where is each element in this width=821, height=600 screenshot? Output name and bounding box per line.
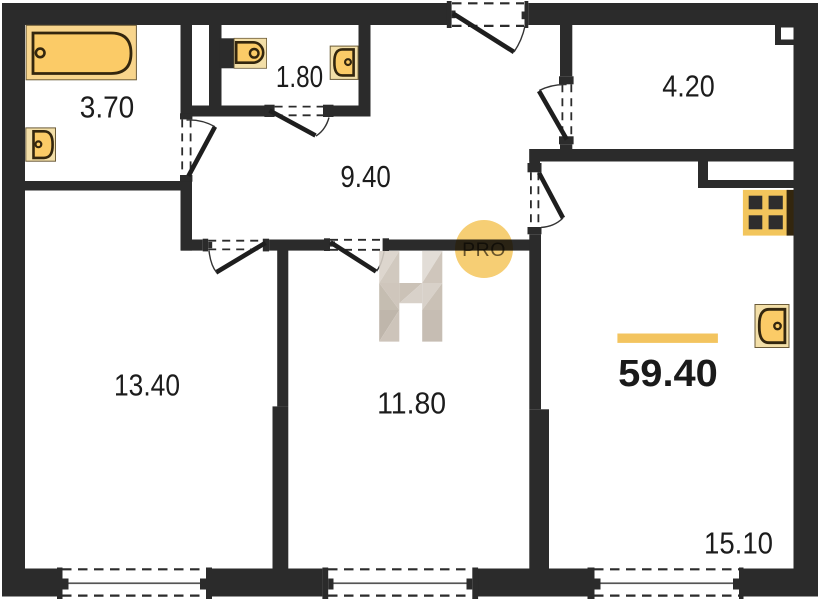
- svg-text:PRO: PRO: [462, 239, 506, 261]
- svg-text:59.40: 59.40: [618, 353, 718, 395]
- svg-text:4.20: 4.20: [662, 69, 715, 104]
- svg-text:15.10: 15.10: [704, 526, 773, 561]
- svg-text:1.80: 1.80: [276, 59, 323, 94]
- svg-text:3.70: 3.70: [80, 90, 135, 125]
- svg-text:9.40: 9.40: [340, 159, 391, 194]
- svg-text:11.80: 11.80: [377, 386, 446, 421]
- svg-text:13.40: 13.40: [114, 368, 180, 403]
